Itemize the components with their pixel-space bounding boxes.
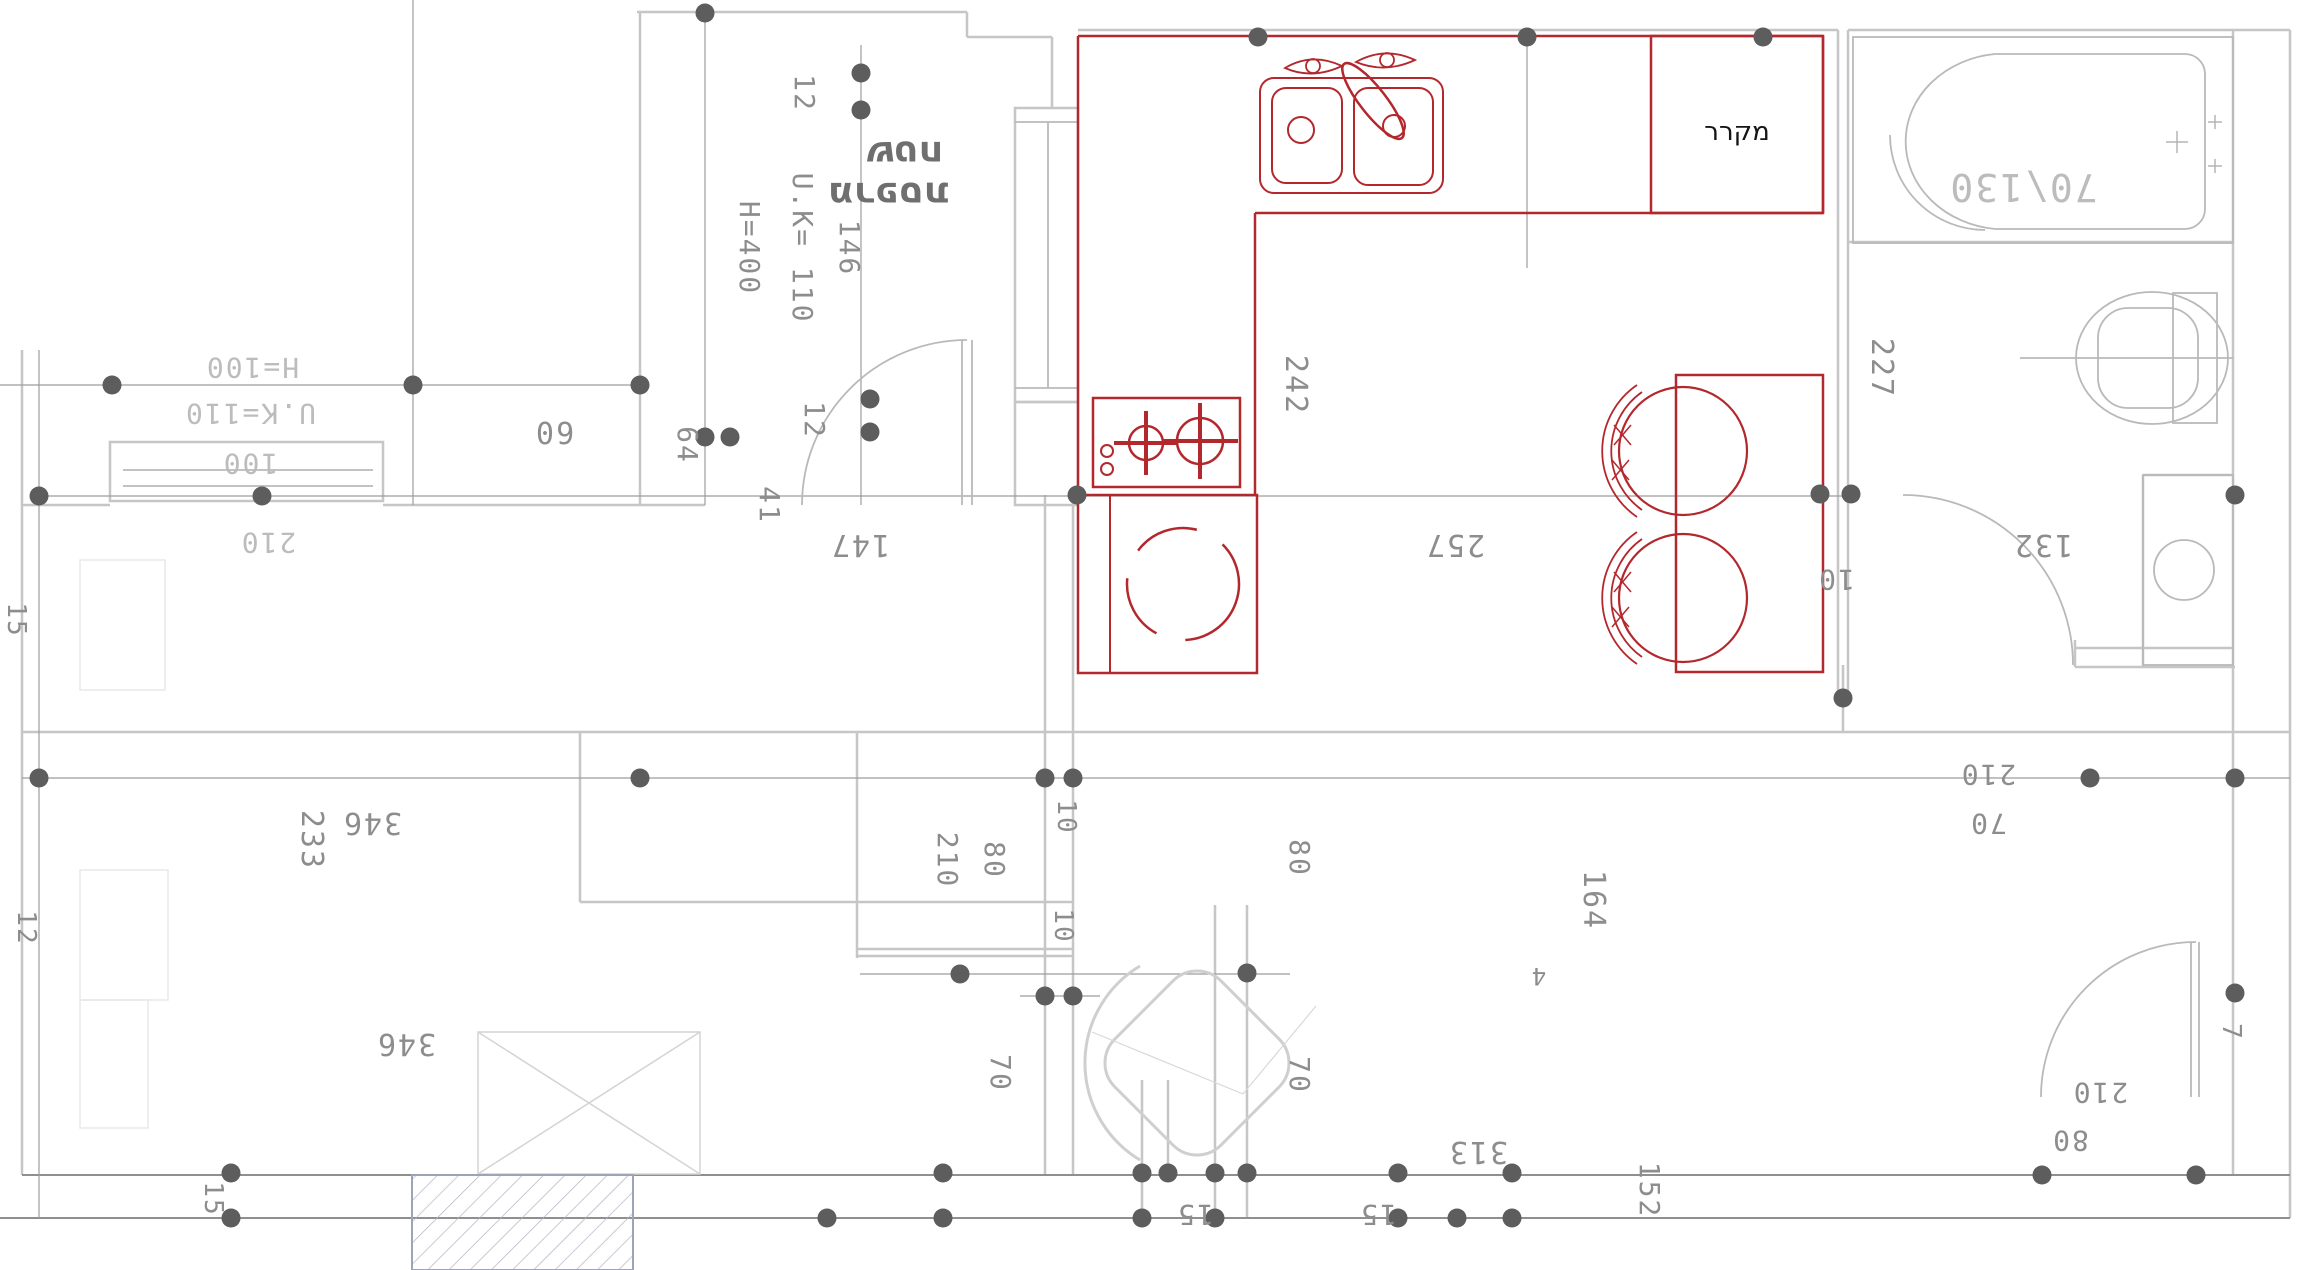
shower-tub-rotated <box>1085 957 1316 1169</box>
dim-100: 100 <box>222 447 279 480</box>
dim-15a: 15 <box>1176 1198 1214 1231</box>
balcony-label-line2: מרפסת <box>828 174 948 215</box>
dim-15b: 15 <box>1359 1198 1397 1231</box>
junction-dot <box>2226 486 2245 505</box>
junction-dot <box>1249 28 1268 47</box>
labels-layer: שטח מרפסת מקרר 70\130 H=100 U.K=110 100 … <box>1 74 2246 1231</box>
oven <box>1078 495 1257 673</box>
junction-dot <box>818 1209 837 1228</box>
dim-146: 146 <box>833 220 866 277</box>
walls-layer <box>0 12 2290 1218</box>
junction-dot <box>1238 964 1257 983</box>
dim-80a: 80 <box>978 841 1011 879</box>
junction-dot <box>951 965 970 984</box>
junction-dot <box>1389 1164 1408 1183</box>
dim-257: 257 <box>1425 527 1485 562</box>
dim-10-fridge: 10 <box>1817 563 1855 596</box>
dim-uk110: U.K=110 <box>184 397 316 430</box>
dim-147: 147 <box>830 527 890 562</box>
washer-dryer-stack <box>1602 375 1823 672</box>
dim-64: 64 <box>671 426 704 464</box>
kitchen-window <box>1015 108 1078 505</box>
toilet <box>2020 292 2233 424</box>
dim-7: 7 <box>2216 1023 2246 1041</box>
floor-plan-drawing: שטח מרפסת מקרר 70\130 H=100 U.K=110 100 … <box>0 0 2303 1270</box>
dim-60: 60 <box>534 414 574 449</box>
refrigerator-label: מקרר <box>1704 117 1769 147</box>
junction-dot <box>1036 987 1055 1006</box>
balcony-label-line1: שטח <box>867 133 943 174</box>
junction-dot <box>1238 1164 1257 1183</box>
junction-dot <box>852 64 871 83</box>
junction-dot <box>1159 1164 1178 1183</box>
floor-plan-canvas: שטח מרפסת מקרר 70\130 H=100 U.K=110 100 … <box>0 0 2303 1270</box>
entrance-door <box>2041 942 2199 1097</box>
cooktop <box>1093 398 1240 487</box>
dim-10b: 10 <box>1048 908 1078 943</box>
doors <box>802 135 2199 1097</box>
dim-132: 132 <box>2013 527 2073 562</box>
junction-dot <box>1133 1164 1152 1183</box>
junction-dot <box>631 376 650 395</box>
junction-dot <box>934 1164 953 1183</box>
dim-70a: 70 <box>984 1054 1017 1092</box>
dim-346a: 346 <box>342 805 402 840</box>
junction-dot <box>2081 769 2100 788</box>
junction-dot <box>2226 769 2245 788</box>
dim-210r: 210 <box>1960 758 2017 791</box>
counter-outline <box>1078 36 1823 495</box>
dim-70b: 70 <box>1283 1056 1316 1094</box>
junction-dot <box>103 376 122 395</box>
bathtub-size-label: 70\130 <box>1948 165 2097 209</box>
hall-door-arc <box>1903 495 2073 665</box>
junction-dot <box>1503 1209 1522 1228</box>
dim-210-window: 210 <box>240 526 297 559</box>
dim-227: 227 <box>1864 338 1899 398</box>
dim-313: 313 <box>1448 1134 1508 1169</box>
junction-dot <box>2226 984 2245 1003</box>
junction-dot <box>253 487 272 506</box>
junction-dot <box>1068 486 1087 505</box>
dim-164: 164 <box>1576 870 1611 930</box>
dim-12-left: 12 <box>11 910 41 945</box>
junction-dot <box>721 428 740 447</box>
junction-dot <box>1448 1209 1467 1228</box>
junction-dot <box>934 1209 953 1228</box>
kitchen-sink <box>1260 53 1443 193</box>
dim-4: 4 <box>1530 962 1546 990</box>
junction-dot <box>1206 1164 1225 1183</box>
junction-dot <box>1754 28 1773 47</box>
junction-dot <box>30 487 49 506</box>
junction-dot <box>861 390 880 409</box>
junction-dot <box>1064 987 1083 1006</box>
dim-242: 242 <box>1278 355 1313 415</box>
faucet-spout <box>1334 56 1412 146</box>
junction-dot <box>1064 769 1083 788</box>
bathroom-fixtures <box>1853 37 2233 665</box>
junction-dot <box>631 769 650 788</box>
washbasin <box>2143 475 2233 665</box>
dim-80b: 80 <box>1283 839 1316 877</box>
furniture-faint <box>80 560 700 1174</box>
dim-uk110b: U.K= 110 <box>786 173 819 324</box>
dim-10a: 10 <box>1051 799 1081 834</box>
junction-dot <box>1842 485 1861 504</box>
junction-dot <box>2187 1166 2206 1185</box>
dim-12-door: 12 <box>798 401 831 439</box>
hatched-wall-section <box>412 1175 633 1270</box>
dimension-lines <box>0 0 2290 1218</box>
junction-dot <box>404 376 423 395</box>
bathtub <box>1853 37 2233 243</box>
junction-dot <box>1133 1209 1152 1228</box>
dim-12-top: 12 <box>788 74 821 112</box>
junction-dot <box>852 101 871 120</box>
junction-dot <box>30 769 49 788</box>
junction-dot <box>696 4 715 23</box>
dim-210a: 210 <box>931 832 964 889</box>
dim-h400: H=400 <box>733 201 766 295</box>
junction-dot <box>861 423 880 442</box>
dim-15-wall: 15 <box>198 1181 228 1216</box>
junction-dot <box>2033 1166 2052 1185</box>
dim-346b: 346 <box>376 1026 436 1061</box>
dim-15-left-edge: 15 <box>1 602 31 637</box>
plus-marks <box>2166 115 2222 173</box>
closet-x-symbol <box>478 1032 700 1174</box>
dim-70r: 70 <box>1969 807 2007 840</box>
dim-233: 233 <box>294 810 329 870</box>
junction-dot <box>1834 689 1853 708</box>
junction-dot <box>1811 485 1830 504</box>
dim-152: 152 <box>1633 1162 1666 1219</box>
dim-210br: 210 <box>2072 1076 2129 1109</box>
junction-dot <box>1518 28 1537 47</box>
dim-41: 41 <box>753 486 786 524</box>
dim-h100: H=100 <box>205 351 299 384</box>
junction-dot <box>222 1164 241 1183</box>
junction-dot <box>1036 769 1055 788</box>
dim-80br: 80 <box>2051 1124 2089 1157</box>
